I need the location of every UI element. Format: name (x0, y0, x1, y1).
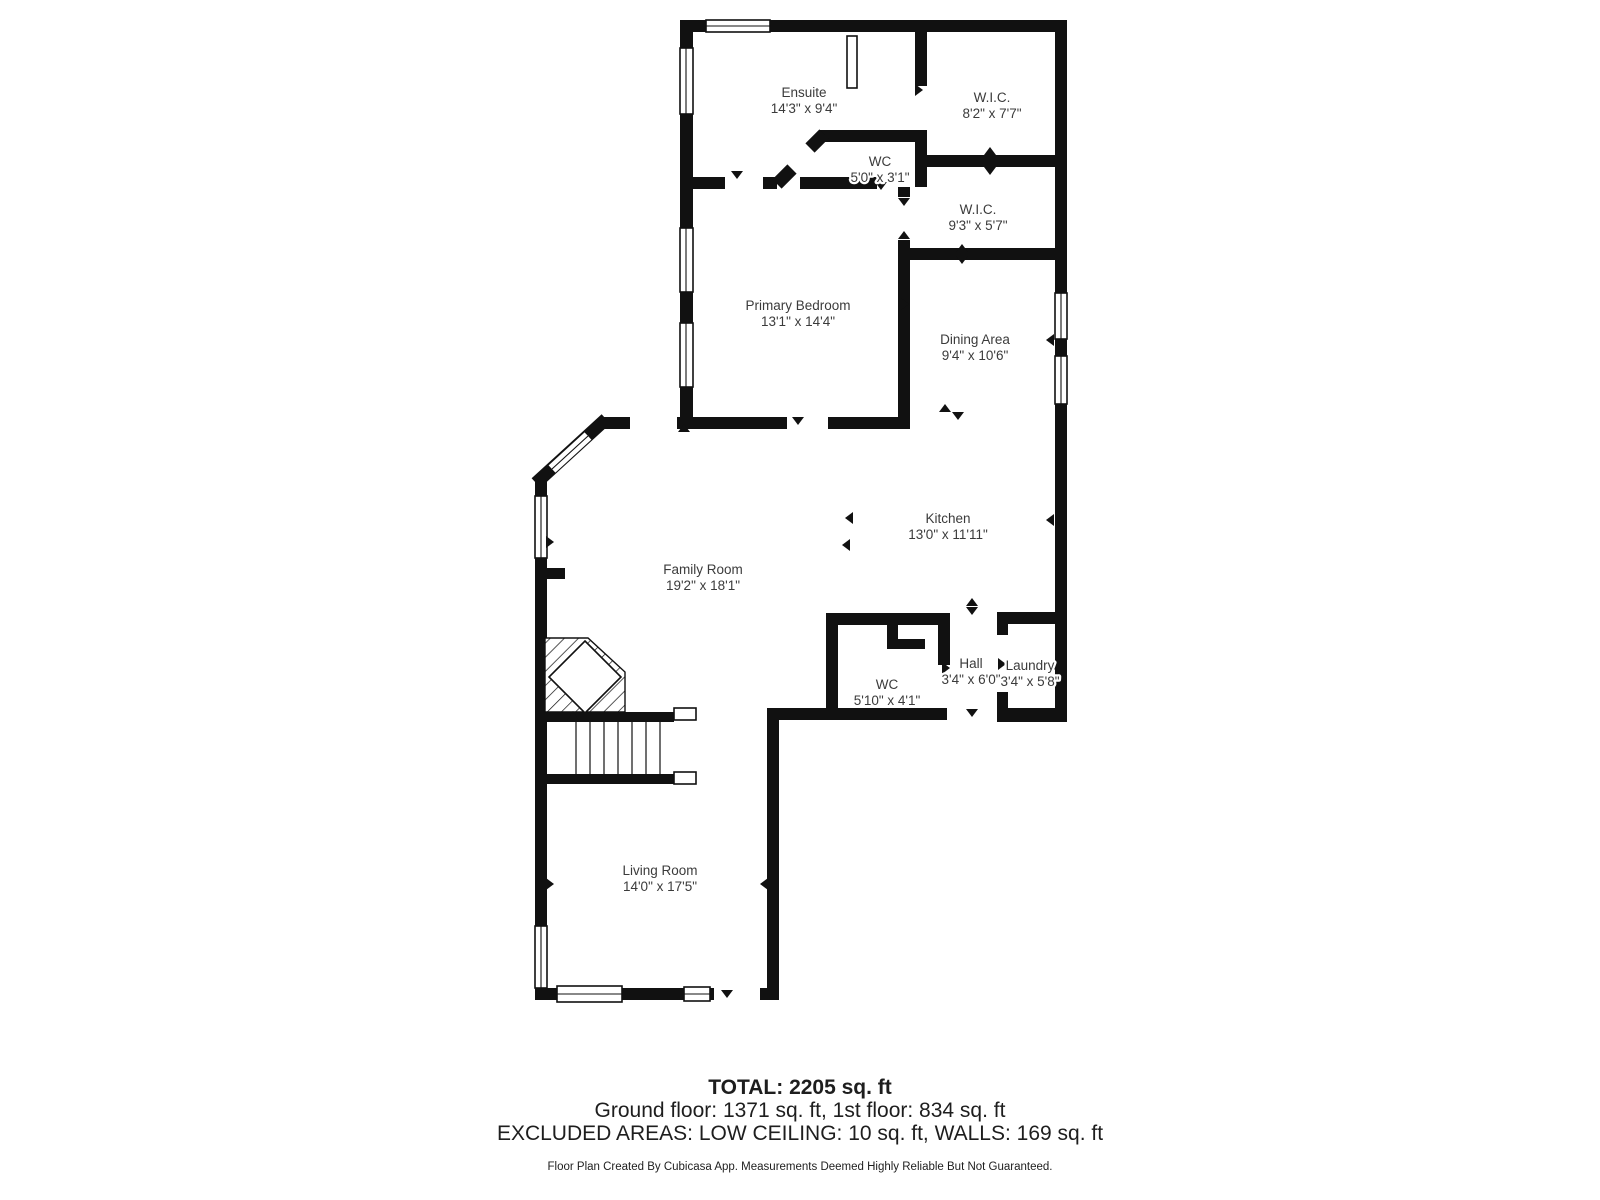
stair-rail (674, 708, 696, 720)
room-dims: 3'4" x 6'0" (941, 672, 1000, 687)
room-name: W.I.C. (960, 202, 997, 217)
stairs (545, 638, 696, 784)
room-label-dining-area: Dining Area 9'4" x 10'6" (940, 332, 1010, 363)
room-dims: 19'2" x 18'1" (666, 578, 740, 593)
room-name: Family Room (663, 562, 743, 577)
room-dims: 8'2" x 7'7" (962, 106, 1021, 121)
room-label-wc-lower: WC 5'10" x 4'1" (854, 677, 921, 708)
floor-areas-text: Ground floor: 1371 sq. ft, 1st floor: 83… (595, 1099, 1006, 1122)
total-area-text: TOTAL: 2205 sq. ft (708, 1076, 892, 1099)
disclaimer-text: Floor Plan Created By Cubicasa App. Meas… (548, 1161, 1053, 1173)
room-name: Dining Area (940, 332, 1010, 347)
room-label-living-room: Living Room 14'0" x 17'5" (622, 863, 697, 894)
room-name: Living Room (622, 863, 697, 878)
room-name: WC (869, 154, 892, 169)
room-name: W.I.C. (974, 90, 1011, 105)
summary-footer: TOTAL: 2205 sq. ft Ground floor: 1371 sq… (497, 1076, 1103, 1173)
room-label-wc-upper: WC 5'0" x 3'1" (850, 154, 909, 185)
room-dims: 13'1" x 14'4" (761, 314, 835, 329)
room-label-ensuite: Ensuite 14'3" x 9'4" (771, 85, 838, 116)
room-name: Primary Bedroom (745, 298, 850, 313)
room-dims: 14'0" x 17'5" (623, 879, 697, 894)
stair-treads (576, 722, 660, 774)
excluded-areas-text: EXCLUDED AREAS: LOW CEILING: 10 sq. ft, … (497, 1122, 1103, 1145)
room-name: Ensuite (781, 85, 826, 100)
room-dims: 9'4" x 10'6" (942, 348, 1009, 363)
room-dims: 5'0" x 3'1" (850, 170, 909, 185)
room-dims: 13'0" x 11'11" (908, 527, 988, 542)
room-dims: 9'3" x 5'7" (948, 218, 1007, 233)
room-label-primary-bedroom: Primary Bedroom 13'1" x 14'4" (745, 298, 850, 329)
room-name: WC (876, 677, 899, 692)
room-label-wic-second: W.I.C. 9'3" x 5'7" (948, 202, 1007, 233)
room-name: Laundry (1006, 658, 1055, 673)
room-label-laundry: Laundry 3'4" x 5'8" (1000, 658, 1059, 689)
room-dims: 14'3" x 9'4" (771, 101, 838, 116)
pony-wall (847, 36, 857, 88)
room-name: Kitchen (925, 511, 970, 526)
room-label-kitchen: Kitchen 13'0" x 11'11" (908, 511, 988, 542)
room-name: Hall (959, 656, 982, 671)
floorplan-canvas: Ensuite 14'3" x 9'4" W.I.C. 8'2" x 7'7" … (0, 0, 1600, 1200)
room-label-hall: Hall 3'4" x 6'0" (941, 656, 1000, 687)
room-label-family-room: Family Room 19'2" x 18'1" (663, 562, 743, 593)
stair-rail (674, 772, 696, 784)
room-dims: 5'10" x 4'1" (854, 693, 921, 708)
room-dims: 3'4" x 5'8" (1000, 674, 1059, 689)
room-label-wic-upper: W.I.C. 8'2" x 7'7" (962, 90, 1021, 121)
